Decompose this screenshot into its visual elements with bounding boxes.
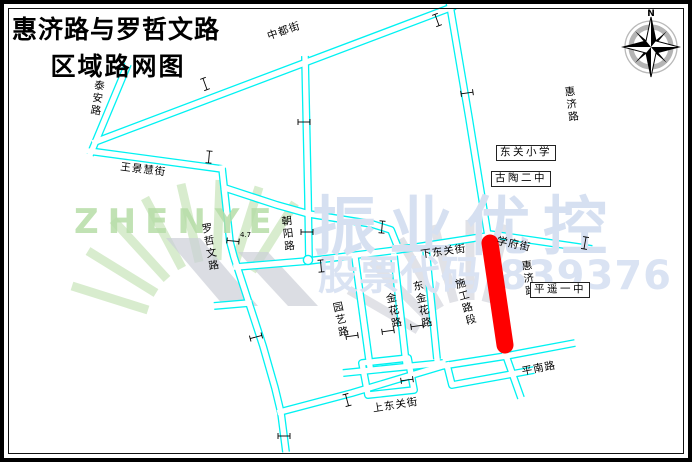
map-title-line2: 区域路网图 (12, 47, 224, 83)
compass-rose: N (623, 9, 679, 77)
road-network-map: ZHENYE 振业优控 股票代码:839376 N 泰安路 中都街 惠济路 王景… (0, 0, 692, 462)
map-title-line1: 惠济路与罗哲文路 (12, 10, 224, 46)
poi-pingyao-no1-middle-school: 平遥一中 (530, 282, 590, 298)
poi-dongguan-primary-school: 东关小学 (496, 145, 556, 161)
map-title: 惠济路与罗哲文路 区域路网图 (12, 10, 224, 83)
poi-gutao-no2-middle-school: 古陶二中 (491, 171, 551, 187)
compass-north-label: N (647, 9, 655, 19)
construction-road-segment (490, 243, 505, 345)
dimension-value: 4.7 (240, 231, 251, 239)
